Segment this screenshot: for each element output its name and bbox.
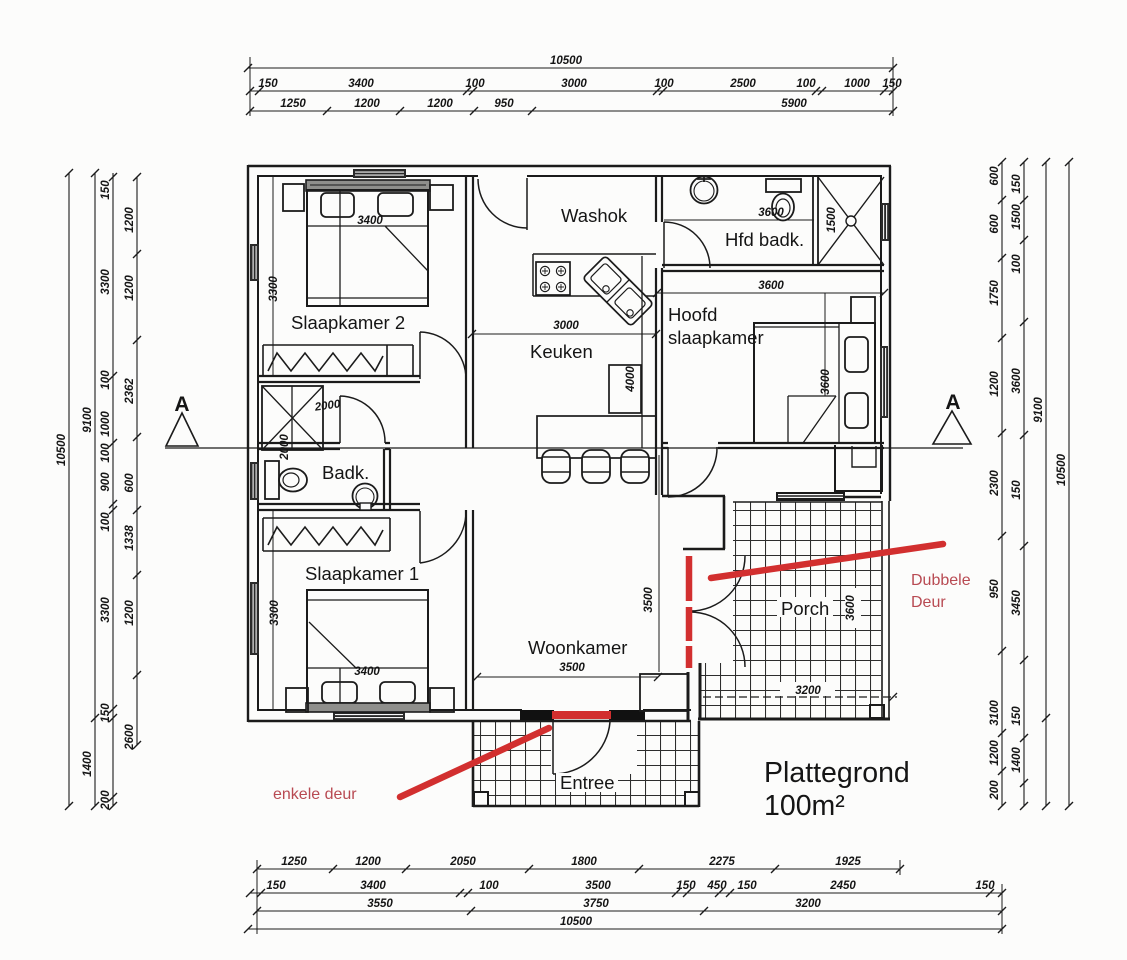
svg-text:950: 950 <box>494 98 514 110</box>
svg-text:450: 450 <box>706 880 727 892</box>
svg-text:150: 150 <box>975 880 995 892</box>
svg-text:3600: 3600 <box>820 369 832 395</box>
svg-text:100: 100 <box>796 78 816 90</box>
svg-text:3600: 3600 <box>758 280 784 292</box>
svg-text:150: 150 <box>1011 174 1023 194</box>
svg-text:1400: 1400 <box>1011 747 1023 773</box>
svg-text:Hoofd: Hoofd <box>668 304 717 325</box>
svg-text:Washok: Washok <box>561 205 628 226</box>
svg-text:3400: 3400 <box>357 215 383 227</box>
svg-text:200: 200 <box>989 780 1001 801</box>
svg-text:1200: 1200 <box>427 98 453 110</box>
svg-text:2450: 2450 <box>829 880 856 892</box>
svg-text:1338: 1338 <box>124 525 136 551</box>
svg-text:2500: 2500 <box>729 78 756 90</box>
svg-text:1250: 1250 <box>280 98 306 110</box>
svg-text:3500: 3500 <box>643 587 655 613</box>
svg-text:1200: 1200 <box>354 98 380 110</box>
svg-text:3550: 3550 <box>367 898 393 910</box>
svg-text:200: 200 <box>100 790 112 811</box>
svg-text:900: 900 <box>100 472 112 492</box>
svg-text:slaapkamer: slaapkamer <box>668 327 764 348</box>
svg-text:600: 600 <box>124 473 136 493</box>
svg-text:3450: 3450 <box>1011 590 1023 616</box>
svg-text:150: 150 <box>737 880 757 892</box>
svg-text:3100: 3100 <box>989 700 1001 726</box>
svg-text:1200: 1200 <box>124 600 136 626</box>
svg-text:3200: 3200 <box>795 685 821 697</box>
svg-text:1750: 1750 <box>989 280 1001 306</box>
svg-text:3300: 3300 <box>268 276 280 302</box>
svg-text:150: 150 <box>100 180 112 200</box>
svg-text:Woonkamer: Woonkamer <box>528 637 627 658</box>
svg-text:1200: 1200 <box>989 371 1001 397</box>
svg-text:3600: 3600 <box>1011 368 1023 394</box>
svg-text:3000: 3000 <box>553 320 579 332</box>
svg-text:enkele deur: enkele deur <box>273 786 357 803</box>
svg-text:9100: 9100 <box>1033 397 1045 423</box>
svg-text:3400: 3400 <box>354 666 380 678</box>
svg-text:Porch: Porch <box>781 598 829 619</box>
svg-text:1400: 1400 <box>82 751 94 777</box>
svg-text:100: 100 <box>465 78 485 90</box>
svg-text:Keuken: Keuken <box>530 341 593 362</box>
svg-text:100: 100 <box>100 370 112 390</box>
svg-text:3500: 3500 <box>585 880 611 892</box>
svg-text:10500: 10500 <box>560 916 593 928</box>
svg-text:100: 100 <box>654 78 674 90</box>
svg-text:10500: 10500 <box>56 433 68 466</box>
svg-text:10500: 10500 <box>550 55 583 67</box>
svg-text:A: A <box>174 393 189 416</box>
svg-text:150: 150 <box>1011 480 1023 500</box>
svg-text:Slaapkamer 2: Slaapkamer 2 <box>291 312 405 333</box>
svg-text:3400: 3400 <box>360 880 386 892</box>
svg-text:100: 100 <box>100 512 112 532</box>
svg-text:2300: 2300 <box>989 470 1001 497</box>
svg-text:150: 150 <box>1011 706 1023 726</box>
svg-text:Deur: Deur <box>911 594 946 611</box>
svg-text:10500: 10500 <box>1056 453 1068 486</box>
svg-text:1250: 1250 <box>281 856 307 868</box>
svg-text:1200: 1200 <box>124 275 136 301</box>
svg-text:2275: 2275 <box>708 856 735 868</box>
svg-text:950: 950 <box>989 579 1001 599</box>
svg-text:2362: 2362 <box>124 378 136 405</box>
svg-text:Badk.: Badk. <box>322 462 369 483</box>
svg-text:150: 150 <box>266 880 286 892</box>
svg-text:1200: 1200 <box>124 207 136 233</box>
svg-text:3600: 3600 <box>845 595 857 621</box>
svg-text:1000: 1000 <box>844 78 870 90</box>
svg-text:100: 100 <box>479 880 499 892</box>
svg-text:1200: 1200 <box>355 856 381 868</box>
svg-text:1000: 1000 <box>100 411 112 437</box>
svg-text:A: A <box>945 391 960 414</box>
svg-text:5900: 5900 <box>781 98 807 110</box>
svg-text:150: 150 <box>100 703 112 723</box>
svg-text:Entree: Entree <box>560 772 615 793</box>
svg-text:3000: 3000 <box>561 78 587 90</box>
svg-text:9100: 9100 <box>82 407 94 433</box>
svg-text:3200: 3200 <box>795 898 821 910</box>
svg-text:3750: 3750 <box>583 898 609 910</box>
svg-text:Hfd badk.: Hfd badk. <box>725 229 804 250</box>
svg-text:1500: 1500 <box>1011 204 1023 230</box>
svg-text:1925: 1925 <box>835 856 861 868</box>
svg-text:3500: 3500 <box>559 662 585 674</box>
svg-text:150: 150 <box>258 78 278 90</box>
svg-text:100: 100 <box>1011 254 1023 274</box>
svg-text:2000: 2000 <box>279 434 291 461</box>
svg-text:600: 600 <box>989 166 1001 186</box>
svg-text:100m²: 100m² <box>764 790 845 822</box>
svg-text:1800: 1800 <box>571 856 597 868</box>
svg-text:3300: 3300 <box>100 597 112 623</box>
svg-text:600: 600 <box>989 214 1001 234</box>
svg-text:3400: 3400 <box>348 78 374 90</box>
svg-text:3300: 3300 <box>269 600 281 626</box>
svg-text:1200: 1200 <box>989 740 1001 766</box>
svg-text:100: 100 <box>100 443 112 463</box>
svg-text:2050: 2050 <box>449 856 476 868</box>
svg-text:Slaapkamer 1: Slaapkamer 1 <box>305 563 419 584</box>
svg-text:Plattegrond: Plattegrond <box>764 757 910 789</box>
svg-text:2600: 2600 <box>124 724 136 751</box>
svg-text:Dubbele: Dubbele <box>911 572 971 589</box>
svg-text:1500: 1500 <box>826 207 838 233</box>
svg-text:150: 150 <box>882 78 902 90</box>
svg-text:4000: 4000 <box>625 366 637 393</box>
svg-text:150: 150 <box>676 880 696 892</box>
svg-text:3600: 3600 <box>758 207 784 219</box>
svg-text:3300: 3300 <box>100 269 112 295</box>
